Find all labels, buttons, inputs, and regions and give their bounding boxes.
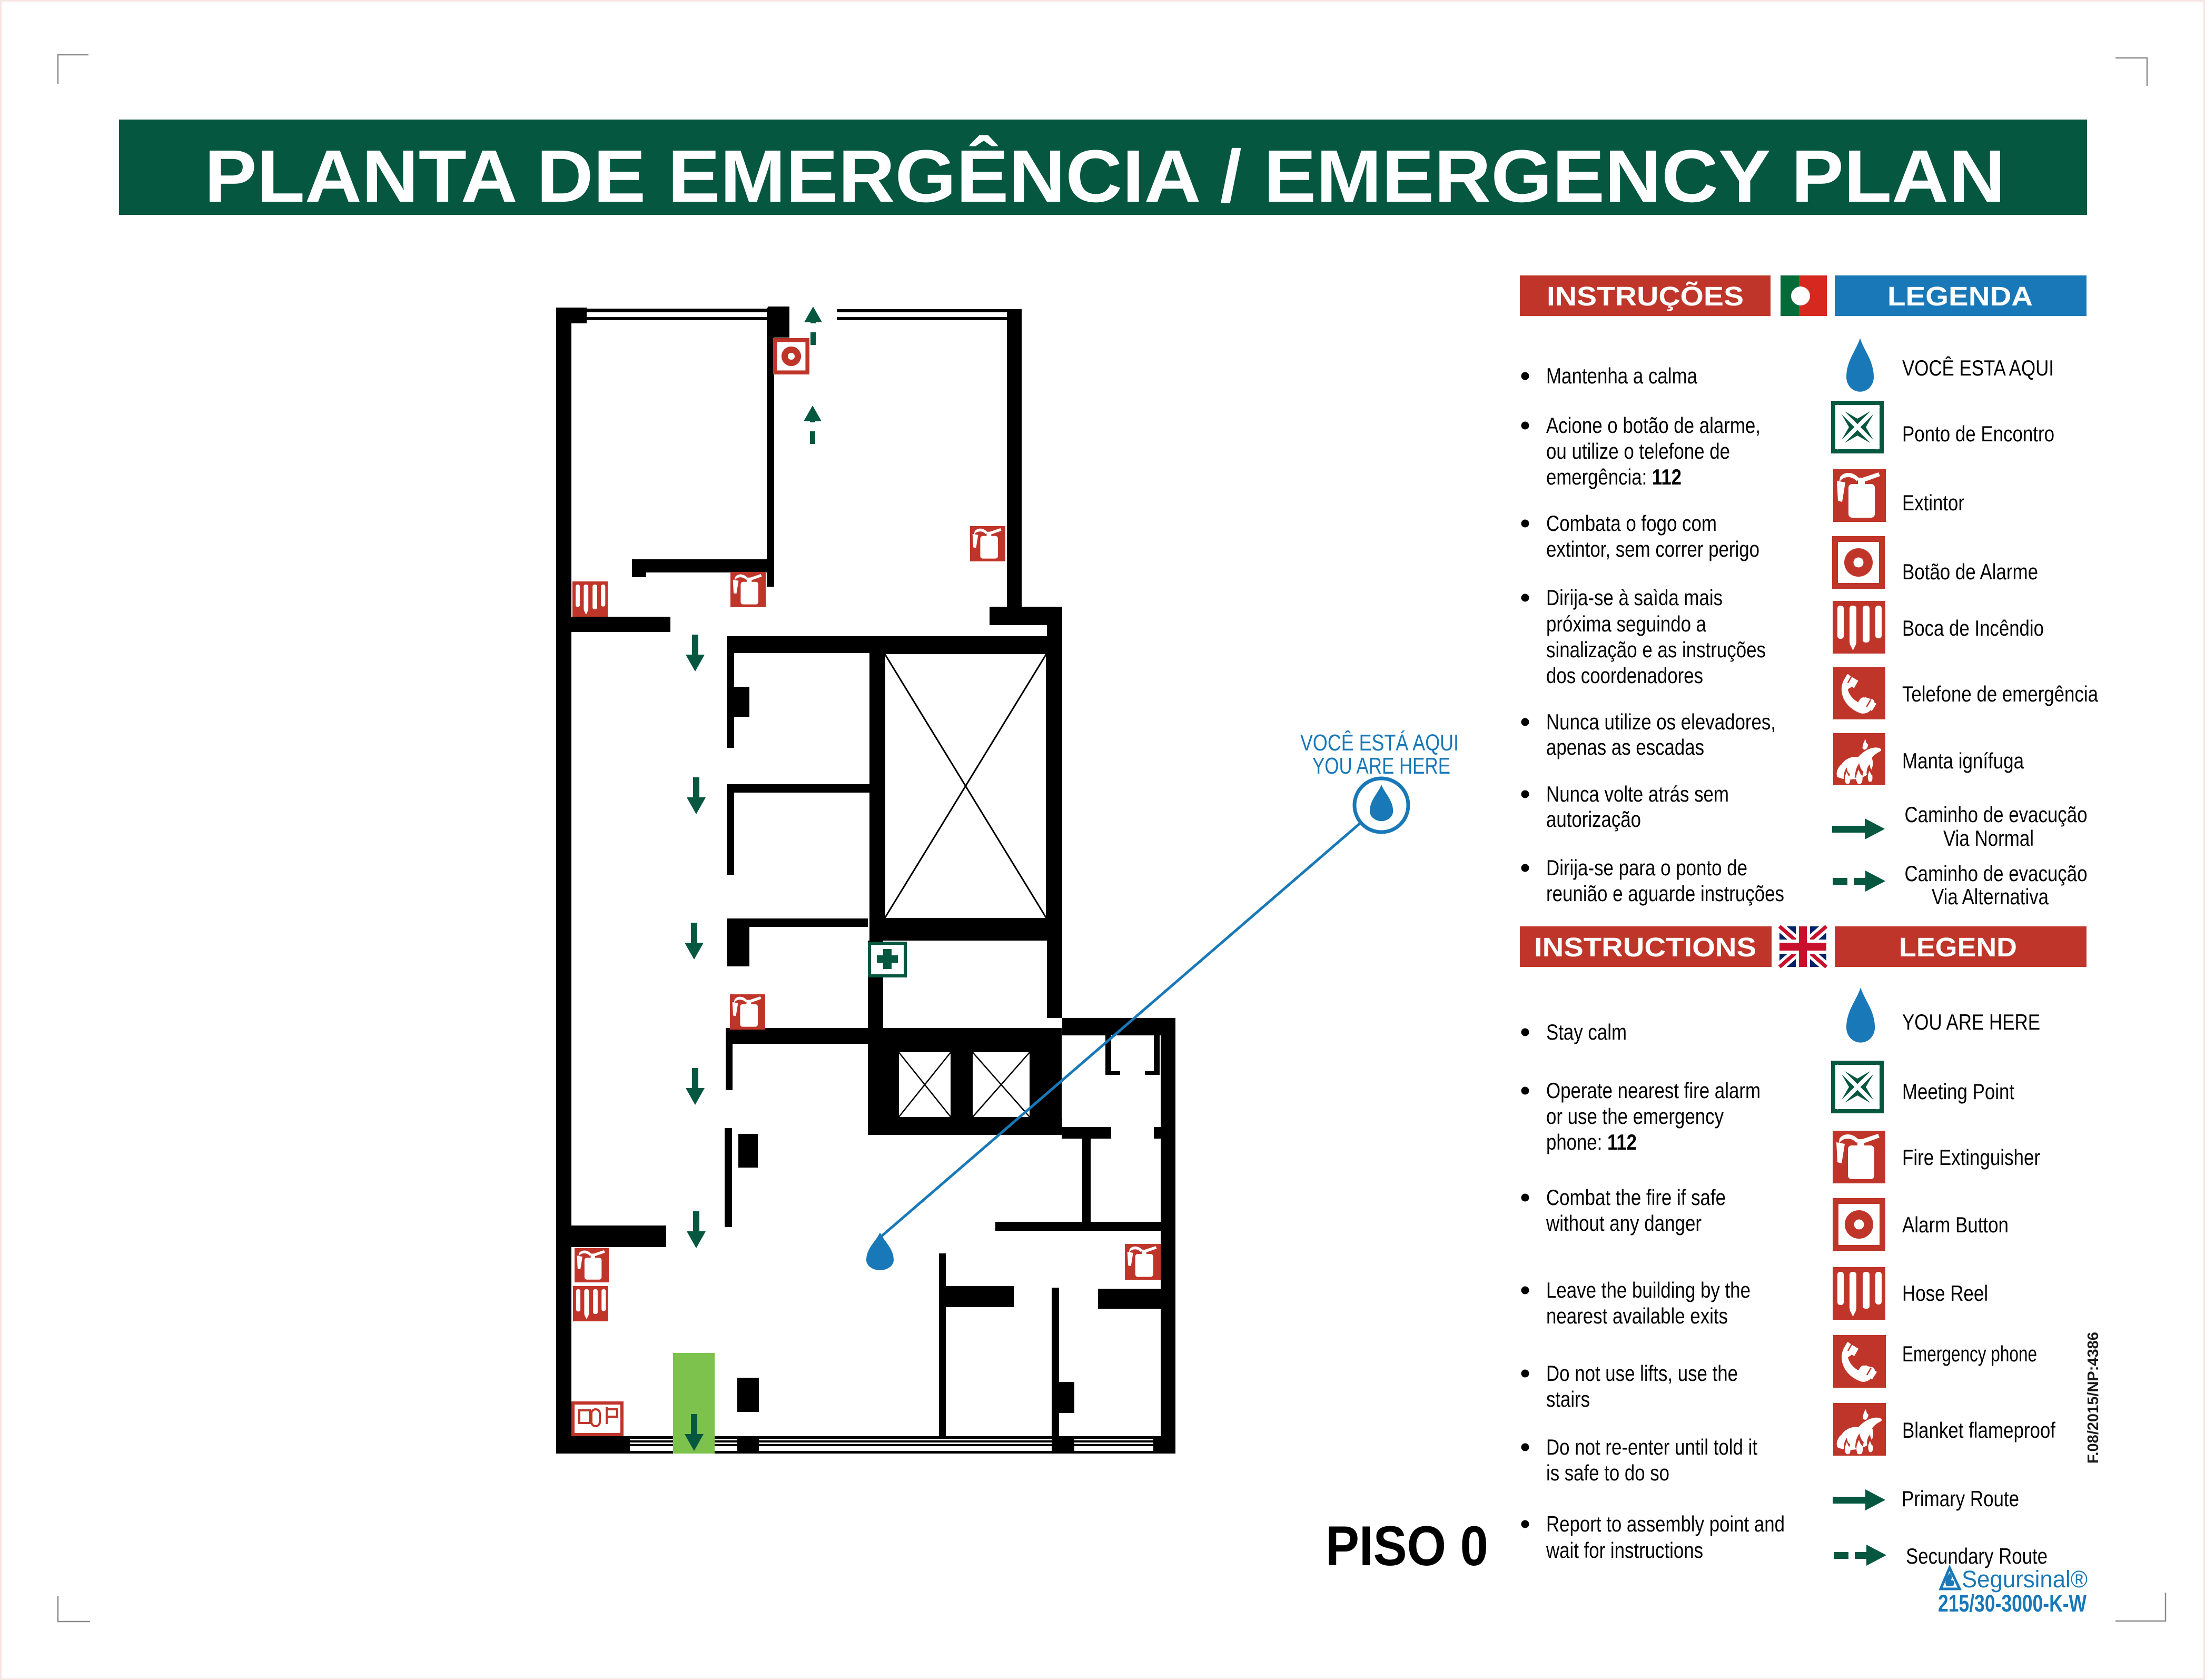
svg-text:YOU ARE HERE: YOU ARE HERE (1312, 753, 1450, 779)
svg-text:Manta ignífuga: Manta ignífuga (1902, 748, 2024, 773)
svg-text:Acione o botão de alarme,: Acione o botão de alarme, (1546, 413, 1761, 438)
svg-text:nearest available exits: nearest available exits (1546, 1303, 1728, 1328)
svg-text:Combat the fire if safe: Combat the fire if safe (1546, 1185, 1726, 1210)
svg-text:Segursinal®: Segursinal® (1962, 1566, 2088, 1593)
svg-text:is safe to do so: is safe to do so (1546, 1460, 1669, 1485)
svg-text:wait for instructions: wait for instructions (1546, 1538, 1703, 1563)
svg-text:PLANTA DE EMERGÊNCIA / EMERGEN: PLANTA DE EMERGÊNCIA / EMERGENCY PLAN (204, 134, 2005, 218)
svg-text:LEGENDA: LEGENDA (1887, 281, 2033, 311)
svg-text:Fire Extinguisher: Fire Extinguisher (1902, 1145, 2040, 1170)
svg-text:Primary Route: Primary Route (1902, 1486, 2019, 1511)
svg-text:VOCÊ ESTA AQUI: VOCÊ ESTA AQUI (1902, 355, 2054, 380)
svg-text:apenas as escadas: apenas as escadas (1546, 735, 1704, 759)
svg-text:emergência: 112: emergência: 112 (1546, 465, 1682, 489)
svg-text:Dirija-se à saìda mais: Dirija-se à saìda mais (1546, 585, 1723, 610)
svg-text:Ponto de Encontro: Ponto de Encontro (1902, 421, 2054, 446)
svg-text:sinalização e as instruções: sinalização e as instruções (1546, 637, 1766, 662)
svg-text:VOCÊ ESTÁ AQUI: VOCÊ ESTÁ AQUI (1300, 730, 1459, 756)
svg-text:Botão de Alarme: Botão de Alarme (1902, 559, 2038, 584)
svg-text:Operate nearest fire alarm: Operate nearest fire alarm (1546, 1078, 1761, 1103)
svg-text:Secundary Route: Secundary Route (1906, 1544, 2048, 1568)
svg-text:stairs: stairs (1546, 1387, 1590, 1411)
svg-text:INSTRUÇÕES: INSTRUÇÕES (1547, 281, 1744, 311)
svg-text:Blanket flameproof: Blanket flameproof (1902, 1418, 2055, 1442)
svg-text:Stay calm: Stay calm (1546, 1020, 1627, 1044)
svg-text:phone: 112: phone: 112 (1546, 1130, 1637, 1154)
svg-text:Nunca volte atrás sem: Nunca volte atrás sem (1546, 782, 1729, 806)
svg-text:or use the emergency: or use the emergency (1546, 1104, 1724, 1129)
svg-text:dos coordenadores: dos coordenadores (1546, 663, 1703, 688)
svg-text:LEGEND: LEGEND (1899, 932, 2017, 962)
svg-text:Alarm Button: Alarm Button (1902, 1212, 2009, 1237)
svg-text:ou utilize o telefone de: ou utilize o telefone de (1546, 439, 1730, 463)
svg-text:reunião e aguarde instruções: reunião e aguarde instruções (1546, 881, 1784, 906)
svg-text:Emergency phone: Emergency phone (1902, 1341, 2037, 1366)
svg-text:Report to assembly point and: Report to assembly point and (1546, 1511, 1785, 1536)
svg-text:215/30-3000-K-W: 215/30-3000-K-W (1938, 1590, 2087, 1617)
svg-text:extintor, sem correr perigo: extintor, sem correr perigo (1546, 537, 1759, 561)
svg-text:Mantenha a calma: Mantenha a calma (1546, 363, 1698, 388)
svg-text:Via Alternativa: Via Alternativa (1932, 884, 2049, 909)
svg-text:Extintor: Extintor (1902, 490, 1964, 515)
svg-text:Leave the building by the: Leave the building by the (1546, 1278, 1751, 1302)
svg-text:without any danger: without any danger (1546, 1211, 1702, 1236)
svg-text:Nunca utilize os elevadores,: Nunca utilize os elevadores, (1546, 709, 1776, 734)
svg-text:YOU ARE HERE: YOU ARE HERE (1902, 1010, 2040, 1034)
svg-text:Caminho de evacução: Caminho de evacução (1905, 861, 2088, 886)
svg-text:Boca de Incêndio: Boca de Incêndio (1902, 616, 2044, 640)
svg-text:PISO 0: PISO 0 (1326, 1514, 1488, 1577)
svg-text:autorização: autorização (1546, 807, 1641, 832)
svg-text:Do not re-enter until told it: Do not re-enter until told it (1546, 1435, 1757, 1459)
svg-text:Caminho de evacução: Caminho de evacução (1905, 802, 2088, 827)
svg-text:Do not use lifts, use the: Do not use lifts, use the (1546, 1361, 1738, 1386)
svg-text:Combata o fogo com: Combata o fogo com (1546, 511, 1717, 536)
svg-text:Meeting Point: Meeting Point (1902, 1079, 2014, 1104)
svg-text:Via Normal: Via Normal (1943, 826, 2034, 851)
svg-text:INSTRUCTIONS: INSTRUCTIONS (1534, 932, 1756, 962)
svg-text:Telefone de emergência: Telefone de emergência (1902, 681, 2099, 706)
svg-text:F.08/2015/NP:4386: F.08/2015/NP:4386 (2085, 1332, 2102, 1464)
svg-text:Hose Reel: Hose Reel (1902, 1281, 1988, 1306)
svg-text:Dirija-se para o ponto de: Dirija-se para o ponto de (1546, 855, 1747, 880)
svg-text:próxima seguindo a: próxima seguindo a (1546, 611, 1707, 636)
